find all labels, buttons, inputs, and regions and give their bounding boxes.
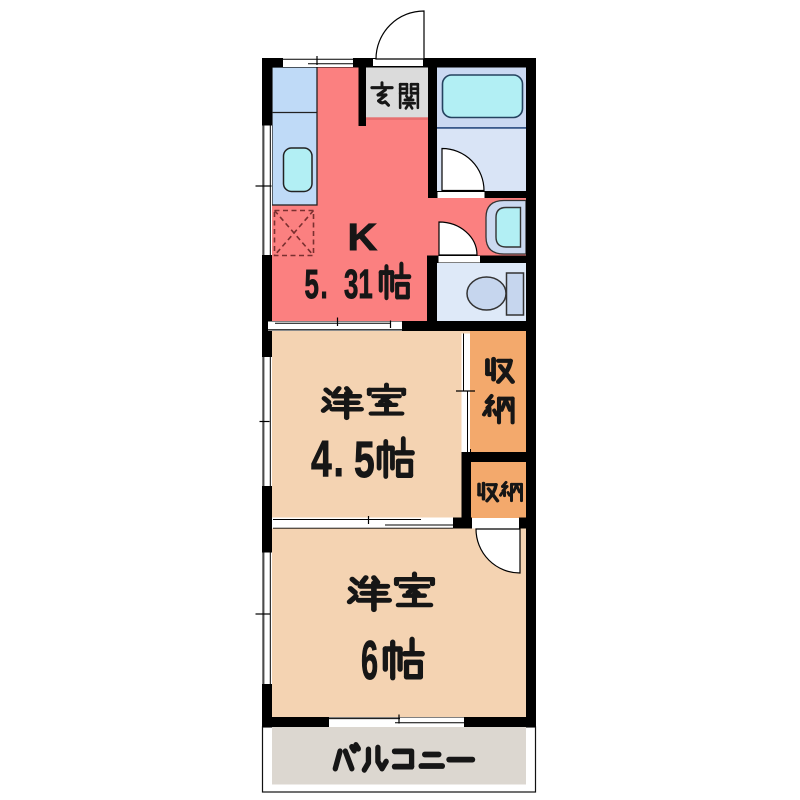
svg-text:5: 5	[305, 262, 319, 307]
svg-text:.: .	[334, 431, 344, 487]
svg-text:31: 31	[344, 262, 373, 307]
svg-text:.: .	[321, 262, 328, 307]
svg-text:5: 5	[354, 432, 375, 488]
svg-text:K: K	[348, 217, 378, 259]
svg-text:6: 6	[361, 631, 378, 691]
svg-text:4: 4	[311, 431, 332, 487]
